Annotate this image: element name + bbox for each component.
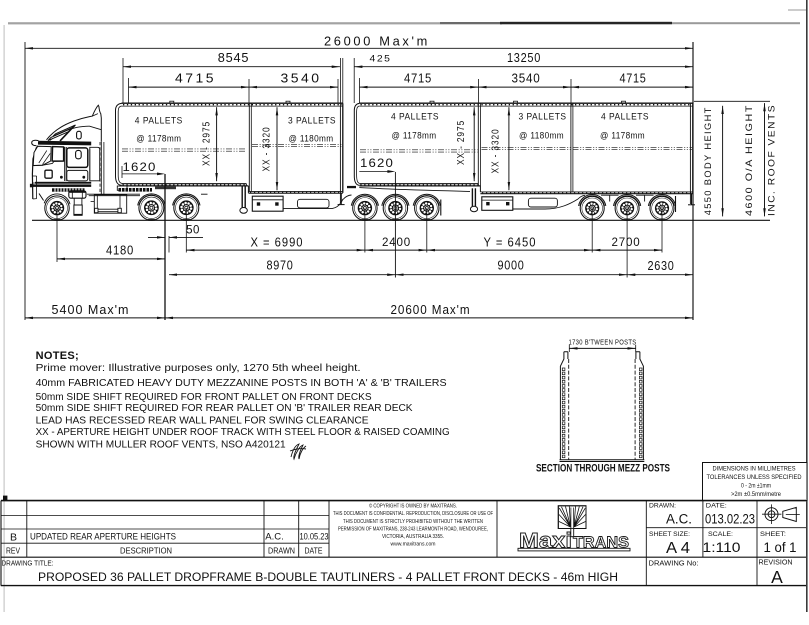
svg-text:DIMENSIONS IN MILLIMETRES: DIMENSIONS IN MILLIMETRES bbox=[713, 466, 796, 473]
svg-text:XX - 3320: XX - 3320 bbox=[262, 127, 273, 172]
svg-text:10.05.23: 10.05.23 bbox=[300, 532, 329, 543]
svg-text:© COPYRIGHT IS OWNED BY MAXITR: © COPYRIGHT IS OWNED BY MAXITRANS. bbox=[369, 503, 457, 510]
svg-text:DRAWING TITLE:: DRAWING TITLE: bbox=[2, 559, 54, 568]
svg-text:A: A bbox=[771, 567, 783, 587]
svg-text:4 PALLETS: 4 PALLETS bbox=[391, 112, 439, 123]
svg-text:DATE: DATE bbox=[305, 545, 323, 555]
svg-text:4550 BODY HEIGHT: 4550 BODY HEIGHT bbox=[703, 106, 714, 215]
svg-text:4715: 4715 bbox=[404, 72, 432, 86]
svg-text:REV: REV bbox=[6, 546, 20, 556]
svg-text:1620: 1620 bbox=[360, 158, 394, 170]
svg-text:Prime mover: Illustrative purp: Prime mover: Illustrative purposes only,… bbox=[36, 362, 361, 374]
svg-text:3540: 3540 bbox=[512, 72, 541, 86]
svg-text:X = 6990: X = 6990 bbox=[251, 235, 304, 249]
svg-text:DRAWN: DRAWN bbox=[268, 545, 295, 555]
svg-text:13250: 13250 bbox=[507, 51, 541, 65]
svg-text:>2m ±0.5mm/metre: >2m ±0.5mm/metre bbox=[731, 491, 781, 498]
svg-text:A 4: A 4 bbox=[666, 540, 690, 557]
svg-text:UPDATED REAR APERTURE HEIGHTS: UPDATED REAR APERTURE HEIGHTS bbox=[30, 532, 176, 542]
svg-text:4715: 4715 bbox=[175, 71, 216, 86]
svg-text:DATE:: DATE: bbox=[706, 502, 727, 509]
svg-text:0 - 2m ±1mm: 0 - 2m ±1mm bbox=[741, 482, 771, 489]
svg-text:2700: 2700 bbox=[612, 237, 641, 249]
svg-text:@ 1180mm: @ 1180mm bbox=[289, 134, 334, 144]
svg-text:THIS DOCUMENT IS STRICTLY PROH: THIS DOCUMENT IS STRICTLY PROHIBITED WIT… bbox=[343, 519, 483, 525]
svg-text:2400: 2400 bbox=[382, 237, 411, 249]
svg-text:8970: 8970 bbox=[267, 258, 294, 272]
svg-text:50mm SIDE SHIFT REQUIRED FOR R: 50mm SIDE SHIFT REQUIRED FOR REAR PALLET… bbox=[36, 402, 413, 414]
svg-text:THIS DOCUMENT IS CONFIDENTIAL.: THIS DOCUMENT IS CONFIDENTIAL. REPRODUCT… bbox=[333, 511, 494, 517]
svg-text:8545: 8545 bbox=[218, 50, 250, 65]
svg-text:LEAD HAS RECESSED REAR WALL PA: LEAD HAS RECESSED REAR WALL PANEL FOR SW… bbox=[36, 414, 369, 426]
svg-text:PROPOSED 36 PALLET DROPFRAME B: PROPOSED 36 PALLET DROPFRAME B-DOUBLE TA… bbox=[38, 572, 618, 584]
svg-text:XX - 2975: XX - 2975 bbox=[202, 121, 213, 166]
svg-text:26000 Max'm: 26000 Max'm bbox=[324, 35, 430, 49]
svg-text:SECTION THROUGH MEZZ POSTS: SECTION THROUGH MEZZ POSTS bbox=[536, 462, 670, 474]
svg-text:@ 1178mm: @ 1178mm bbox=[136, 134, 181, 144]
svg-text:20600 Max'm: 20600 Max'm bbox=[391, 303, 471, 317]
svg-text:NOTES;: NOTES; bbox=[36, 350, 79, 362]
svg-text:REVISION: REVISION bbox=[759, 558, 793, 567]
svg-text:SHOWN WITH MULLER ROOF VENTS,: SHOWN WITH MULLER ROOF VENTS, NSO A42012… bbox=[36, 438, 286, 450]
svg-text:1730 B'TWEEN POSTS: 1730 B'TWEEN POSTS bbox=[569, 338, 637, 347]
svg-text:XX - APERTURE HEIGHT UNDER ROO: XX - APERTURE HEIGHT UNDER ROOF TRACK WI… bbox=[36, 426, 450, 438]
svg-text:3 PALLETS: 3 PALLETS bbox=[519, 112, 567, 123]
svg-text:@ 1178mm: @ 1178mm bbox=[600, 131, 645, 141]
svg-text:4 PALLETS: 4 PALLETS bbox=[135, 116, 183, 127]
svg-text:5400 Max'm: 5400 Max'm bbox=[52, 303, 130, 317]
svg-text:B: B bbox=[10, 532, 17, 544]
svg-text:DRAWING No:: DRAWING No: bbox=[649, 558, 699, 567]
svg-text:3 PALLETS: 3 PALLETS bbox=[288, 116, 336, 127]
svg-text:VICTORIA, AUSTRALIA 3355.: VICTORIA, AUSTRALIA 3355. bbox=[382, 534, 444, 540]
svg-text:4180: 4180 bbox=[106, 244, 134, 258]
svg-text:4600 O/A HEIGHT: 4600 O/A HEIGHT bbox=[744, 104, 755, 216]
svg-text:INC. ROOF VENTS: INC. ROOF VENTS bbox=[767, 104, 778, 216]
svg-text:A.C.: A.C. bbox=[666, 512, 692, 527]
svg-text:50: 50 bbox=[186, 224, 200, 236]
svg-text:SHEET:: SHEET: bbox=[760, 531, 786, 538]
svg-text:XX - 2975: XX - 2975 bbox=[456, 120, 467, 165]
svg-text:40mm FABRICATED HEAVY DUTY MEZ: 40mm FABRICATED HEAVY DUTY MEZZANINE POS… bbox=[36, 377, 447, 389]
svg-text:1:110: 1:110 bbox=[703, 540, 741, 555]
svg-text:@ 1180mm: @ 1180mm bbox=[519, 131, 564, 141]
svg-text:XX - 3320: XX - 3320 bbox=[491, 129, 502, 174]
svg-text:SCALE:: SCALE: bbox=[708, 531, 733, 538]
svg-text:TOLERANCES UNLESS SPECIFIED: TOLERANCES UNLESS SPECIFIED bbox=[707, 474, 802, 481]
svg-text:1 of 1: 1 of 1 bbox=[764, 540, 797, 555]
svg-text:2630: 2630 bbox=[648, 259, 675, 273]
svg-text:@ 1178mm: @ 1178mm bbox=[392, 131, 437, 141]
svg-text:A.C.: A.C. bbox=[265, 532, 283, 543]
svg-text:DRAWN:: DRAWN: bbox=[649, 502, 676, 509]
svg-text:3540: 3540 bbox=[281, 71, 322, 86]
svg-text:PERMISSION OF MAXITRANS, 238-2: PERMISSION OF MAXITRANS, 238-243 LEARMON… bbox=[338, 526, 488, 532]
svg-text:013.02.23: 013.02.23 bbox=[705, 512, 755, 527]
svg-text:4715: 4715 bbox=[620, 72, 647, 86]
svg-text:425: 425 bbox=[370, 53, 392, 64]
svg-text:SHEET SIZE:: SHEET SIZE: bbox=[649, 531, 690, 538]
svg-text:DESCRIPTION: DESCRIPTION bbox=[120, 545, 172, 555]
svg-text:Y = 6450: Y = 6450 bbox=[484, 235, 537, 249]
svg-text:www.maxitrans.com: www.maxitrans.com bbox=[390, 542, 436, 548]
svg-text:9000: 9000 bbox=[498, 258, 525, 272]
svg-text:4 PALLETS: 4 PALLETS bbox=[601, 112, 649, 123]
svg-text:1620: 1620 bbox=[123, 162, 157, 174]
svg-text:50mm SIDE SHIFT REQUIRED FOR F: 50mm SIDE SHIFT REQUIRED FOR FRONT PALLE… bbox=[36, 391, 372, 403]
